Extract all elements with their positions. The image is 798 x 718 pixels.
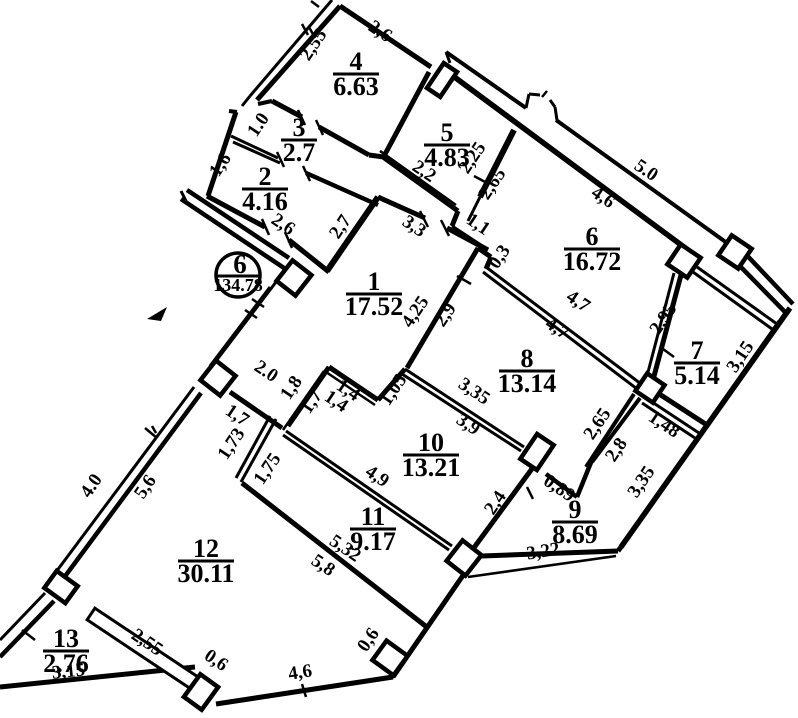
svg-text:30.11: 30.11 xyxy=(177,559,234,588)
svg-text:13.21: 13.21 xyxy=(402,453,461,482)
svg-text:5.14: 5.14 xyxy=(674,361,720,390)
svg-text:4,6: 4,6 xyxy=(287,660,314,684)
svg-text:6.63: 6.63 xyxy=(333,72,379,101)
svg-text:13.14: 13.14 xyxy=(498,369,557,398)
svg-text:17.52: 17.52 xyxy=(345,292,404,321)
svg-text:134.78: 134.78 xyxy=(213,275,263,295)
svg-text:16.72: 16.72 xyxy=(563,247,622,276)
svg-text:3,15: 3,15 xyxy=(51,659,86,683)
svg-text:2.7: 2.7 xyxy=(283,138,316,167)
svg-text:8.69: 8.69 xyxy=(552,520,598,549)
